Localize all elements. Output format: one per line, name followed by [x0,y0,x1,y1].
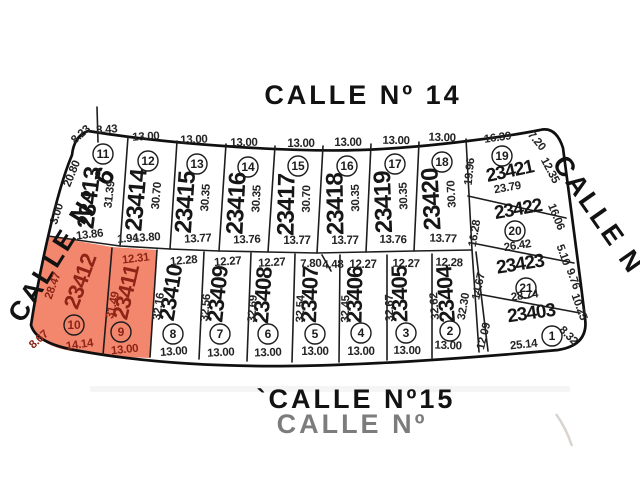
lot-circle: 13 [187,154,207,174]
measure-front: 13.00 [132,130,160,143]
parcel-number: 23419 [369,170,398,233]
measure-back: 13.77 [283,235,310,247]
lot-23420[interactable]: 23420 30.70 13.00 13.77 18 [416,132,458,246]
measure-front: 13.00 [382,135,409,147]
parcel-number: 23418 [321,172,349,235]
measure-side-right: 32.30 [456,292,473,321]
measure-front: 13.00 [230,137,257,149]
lot-23406[interactable]: 23406 32.45 12.27 13.00 4 [340,259,377,358]
measure-front: 12.27 [392,258,419,270]
svg-text:16: 16 [340,159,354,173]
measure-front: 8.43 [96,123,118,136]
lot-23408[interactable]: 23408 32.69 12.27 13.00 6 [246,256,286,359]
measure-front: 12.28 [435,257,464,270]
measure-side-right: 16.06 [545,202,566,232]
measure-back: 13.00 [347,346,374,358]
measure-front: 13.00 [428,132,456,145]
lot-circle: 5 [305,324,325,344]
parcel-number: 23423 [495,250,546,278]
measure-side-left: 19.96 [463,157,478,185]
measure-side-left: 14.67 [470,272,487,301]
lot-circle: 11 [93,144,113,164]
measure-front: 13.00 [180,134,208,147]
svg-text:3: 3 [403,326,410,340]
svg-text:2: 2 [447,324,454,338]
street-label-calle-4: CALLE Nº 4 [547,150,640,314]
parcel-number: 23422 [493,195,544,224]
measure-side-left: 32.62 [428,292,442,320]
measure-front-a: 7.80 [300,258,322,271]
measure-back: 13.00 [393,345,420,357]
svg-text:14: 14 [241,160,255,174]
svg-text:1: 1 [549,329,556,343]
measure-front: 12.27 [258,256,286,269]
lot-23407[interactable]: 23407 32.54 7.80 4.48 13.00 5 [295,258,345,358]
lot-circle: 3 [396,323,416,343]
lot-circle: 4 [351,323,371,343]
parcel-number: 23417 [272,173,300,236]
measure-front: 12.28 [170,254,199,268]
svg-text:4: 4 [358,326,365,340]
measure-side: 30.70 [445,180,458,208]
measure-side: 30.70 [301,185,313,212]
measure-side: 32.69 [246,295,260,323]
plat-map: CALLE Nº CALLE Nº 14 `CALLE Nº15 CAL [0,0,640,480]
measure-side-right: 10.25 [569,292,590,323]
parcel-number: 23416 [221,171,251,235]
svg-text:18: 18 [435,155,449,169]
svg-text:21: 21 [519,281,533,295]
svg-text:13: 13 [190,157,204,171]
lot-23410[interactable]: 23410 32.16 12.28 13.00 8 [151,254,199,359]
lot-circle: 8 [163,324,183,344]
measure-back: 13.77 [429,233,457,246]
measure-side: 30.70 [150,182,164,210]
lot-23405[interactable]: 23405 32.67 12.27 13.00 3 [384,258,421,357]
svg-text:17: 17 [388,157,402,171]
measure-corner: 7.20 [525,129,548,153]
lot-23404[interactable]: 23404 32.62 32.30 12.28 13.00 2 [428,257,472,353]
lot-23418[interactable]: 23418 30.35 13.00 13.77 16 [321,137,362,247]
measure-back: 13.86 [75,227,104,242]
scan-mark [556,414,572,446]
parcel-number: 23420 [416,167,446,231]
svg-text:11: 11 [97,147,110,161]
svg-text:7: 7 [217,327,224,341]
lot-23416[interactable]: 23416 30.35 13.00 13.76 14 [221,137,263,247]
lot-circle: 6 [258,324,278,344]
lot-23423[interactable]: 23423 14.67 5.10 9.76 28.74 21 [470,243,582,304]
measure-front: 12.27 [349,259,376,271]
measure-back: 13.00 [207,346,235,359]
svg-text:15: 15 [291,159,305,173]
lot-23403[interactable]: 23403 12.09 10.25 8.32 25.14 1 [475,292,589,352]
measure-side-left: 16.28 [467,218,484,248]
measure-front: 13.00 [334,137,361,149]
measure-back: 13.80 [133,231,161,245]
measure-front-curve: 8.23 [69,123,93,146]
measure-side: 30.35 [250,184,263,213]
street-label-calle-15: `CALLE Nº15 [257,384,456,414]
measure-front: 12.27 [214,255,242,269]
measure-side: 30.35 [350,183,362,211]
measure-side-right: 31.39 [102,180,117,209]
parcel-number: 23403 [506,300,557,328]
measure-side: 32.45 [340,294,352,322]
lot-circle: 15 [288,156,308,176]
lot-circle: 1 [542,326,562,346]
svg-text:8: 8 [170,327,177,341]
measure-back: 13.76 [379,234,406,246]
lot-circle: 2 [440,321,460,341]
svg-text:9: 9 [118,325,125,339]
street-label-calle-14: CALLE Nº 14 [264,80,461,110]
lot-23419[interactable]: 23419 30.35 13.00 13.76 17 [369,135,411,246]
parcel-number: 23415 [170,170,201,234]
measure-back: 13.77 [184,232,212,245]
lot-circle: 16 [337,156,357,176]
svg-text:6: 6 [265,327,272,341]
measure-back: 13.00 [160,345,188,359]
measure-back: 13.76 [233,234,261,247]
measure-side: 32.67 [384,294,396,321]
measure-back: 13.00 [301,346,328,358]
measure-side: 30.35 [397,181,410,210]
measure-front: 16.39 [483,130,512,146]
lot-circle: 7 [210,324,230,344]
svg-text:10: 10 [67,318,81,332]
measure-back: 25.14 [509,338,538,353]
svg-text:5: 5 [312,327,319,341]
svg-text:12: 12 [141,154,155,168]
measure-side-right: 5.10 [554,243,573,267]
measure-front: 13.00 [287,138,314,150]
measure-front-b: 4.48 [322,259,344,272]
measure-back: 13.00 [254,347,282,360]
lot-circle: 12 [138,151,158,171]
svg-text:20: 20 [508,224,522,238]
measure-back: 13.77 [331,235,358,247]
parcel-number: 23414 [120,167,152,233]
svg-text:19: 19 [495,149,509,163]
measure-side: 32.54 [295,294,308,323]
lot-23417[interactable]: 23417 30.70 13.00 13.77 15 [272,138,314,247]
lot-circle: 20 [505,221,525,241]
measure-side: 30.35 [199,183,213,212]
lot-23409[interactable]: 23409 32.56 12.27 13.00 7 [199,255,242,360]
